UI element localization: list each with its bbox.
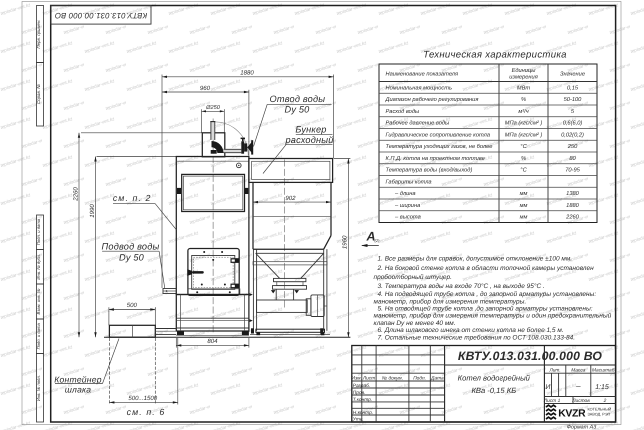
svg-text:Инв. № дубл.: Инв. № дубл. — [36, 254, 41, 280]
svg-text:Техническая характеристика: Техническая характеристика — [423, 50, 567, 61]
svg-text:Пров.: Пров. — [353, 390, 366, 396]
svg-text:Листов: Листов — [571, 398, 590, 404]
svg-text:1880: 1880 — [240, 70, 254, 77]
svg-text:мм: мм — [520, 191, 528, 197]
svg-text:Температура воды (вход/выход): Температура воды (вход/выход) — [386, 167, 473, 174]
svg-text:МПа (кгс/см² ): МПа (кгс/см² ) — [505, 131, 543, 138]
svg-text:960: 960 — [200, 85, 211, 92]
svg-text:расходный: расходный — [284, 135, 333, 145]
svg-text:Диапазон рабочего регулировани: Диапазон рабочего регулирования — [385, 96, 479, 103]
svg-text:манометр, прибор для измерения: манометр, прибор для измерения температу… — [374, 298, 527, 305]
svg-text:клапан Dу не менее 40 мм.: клапан Dу не менее 40 мм. — [374, 320, 456, 327]
svg-text:KVZR: KVZR — [558, 409, 586, 420]
svg-text:Подп. и дата: Подп. и дата — [36, 323, 41, 350]
svg-text:2. На боковой стенке котла в: 2. На боковой стенке котла в области топ… — [377, 265, 595, 272]
svg-text:°С: °С — [520, 144, 527, 150]
svg-text:Подп.: Подп. — [413, 376, 426, 382]
svg-text:Рабочее давление воды: Рабочее давление воды — [386, 120, 451, 127]
svg-text:500: 500 — [127, 302, 138, 309]
svg-text:6. Длина шлакового шнека от с: 6. Длина шлакового шнека от стенки котла… — [378, 327, 564, 334]
svg-text:Dy 50: Dy 50 — [284, 105, 310, 115]
svg-text:№ докум.: № докум. — [382, 376, 403, 382]
svg-text:4. На подводящей трубе котла: 4. На подводящей трубе котла , до запорн… — [378, 291, 597, 298]
svg-text:МПа (кгс/см² ): МПа (кгс/см² ) — [505, 120, 543, 127]
svg-text:80: 80 — [569, 156, 576, 162]
svg-text:Отвод воды: Отвод воды — [270, 94, 326, 104]
svg-text:0,15: 0,15 — [567, 85, 579, 91]
svg-text:Лист: Лист — [543, 398, 556, 404]
svg-text:Dy 50: Dy 50 — [119, 253, 145, 263]
svg-text:Котел водогрейный: Котел водогрейный — [458, 374, 531, 383]
svg-text:Т.контр.: Т.контр. — [353, 397, 372, 403]
svg-text:измерения: измерения — [509, 75, 537, 81]
svg-text:1960: 1960 — [342, 235, 349, 249]
svg-text:Гидравлическое сопротивление к: Гидравлическое сопротивление котла — [386, 131, 491, 138]
svg-text:2260: 2260 — [73, 187, 80, 202]
svg-text:Значение: Значение — [560, 72, 585, 78]
svg-text:пробоотборный штуцер.: пробоотборный штуцер. — [374, 274, 453, 281]
svg-text:мм: мм — [520, 203, 528, 209]
svg-text:Ø250: Ø250 — [205, 105, 221, 111]
svg-text:–: – — [575, 382, 581, 391]
svg-text:0,6(6,0): 0,6(6,0) — [563, 120, 583, 127]
svg-text:Наименование показателя: Наименование показателя — [386, 72, 459, 78]
svg-text:2: 2 — [603, 398, 607, 404]
svg-text:КВа -0,15 КБ: КВа -0,15 КБ — [471, 386, 516, 395]
svg-text:1380: 1380 — [566, 191, 579, 197]
svg-text:Перв. примен.: Перв. примен. — [36, 19, 41, 48]
svg-text:804: 804 — [207, 338, 218, 345]
svg-text:Инв. № подл.: Инв. № подл. — [36, 375, 41, 401]
svg-text:Масса: Масса — [571, 367, 586, 373]
svg-text:Габариты котла: Габариты котла — [386, 178, 432, 185]
svg-text:902: 902 — [285, 195, 296, 202]
svg-text:Контейнер: Контейнер — [54, 374, 101, 384]
svg-text:ЗАВОД. РЭП: ЗАВОД. РЭП — [588, 413, 611, 417]
svg-text:КВТУ.013.031.00.000 ВО: КВТУ.013.031.00.000 ВО — [55, 11, 147, 20]
svg-text:МВт: МВт — [517, 85, 531, 91]
svg-text:70-95: 70-95 — [565, 168, 580, 174]
svg-text:Формат А3: Формат А3 — [567, 424, 597, 430]
svg-text:5. На отводящей трубе котла ,: 5. На отводящей трубе котла ,до запорной… — [378, 306, 593, 313]
svg-text:(2): (2) — [375, 238, 381, 243]
svg-text:Справ. №: Справ. № — [36, 84, 41, 104]
svg-text:250: 250 — [567, 144, 578, 150]
svg-text:7. Остальные технические треб: 7. Остальные технические требования по О… — [378, 334, 576, 341]
svg-text:Номинальная мощность: Номинальная мощность — [386, 85, 452, 91]
svg-text:%: % — [521, 97, 526, 103]
svg-text:К.П.Д. котла на проектном топл: К.П.Д. котла на проектном топливе — [386, 156, 485, 162]
svg-text:1:15: 1:15 — [595, 384, 609, 391]
svg-text:Температура уходящих газов, не: Температура уходящих газов, не более — [386, 143, 493, 150]
svg-text:шлака: шлака — [65, 384, 92, 394]
svg-text:манометр, прибор для измерения: манометр, прибор для измерения температу… — [374, 313, 612, 320]
svg-text:50-100: 50-100 — [564, 97, 583, 103]
svg-text:1. Все размеры для справок, д: 1. Все размеры для справок, допустимое о… — [378, 255, 573, 262]
svg-text:Бункер: Бункер — [295, 124, 326, 134]
svg-text:Единицы: Единицы — [512, 67, 537, 74]
svg-text:Подп. и дата: Подп. и дата — [36, 218, 41, 245]
svg-text:Утв.: Утв. — [353, 417, 364, 423]
svg-text:Расход воды: Расход воды — [386, 108, 420, 115]
svg-text:мм: мм — [520, 215, 528, 221]
svg-text:3. Температура воды на входе: 3. Температура воды на входе 70°С , на в… — [378, 283, 545, 290]
svg-text:500...1500: 500...1500 — [128, 395, 157, 402]
svg-text:– длина: – длина — [394, 190, 416, 197]
svg-text:1880: 1880 — [566, 203, 579, 209]
svg-text:Подвод воды: Подвод воды — [102, 242, 160, 252]
svg-text:Масштаб: Масштаб — [592, 367, 615, 373]
svg-text:– ширина: – ширина — [394, 203, 420, 209]
svg-text:Дата: Дата — [430, 376, 444, 382]
svg-text:КВТУ.013.031.00.000 ВО: КВТУ.013.031.00.000 ВО — [458, 349, 602, 363]
svg-text:м³/ч: м³/ч — [518, 108, 528, 115]
svg-text:Лит.: Лит. — [548, 367, 560, 373]
svg-text:1: 1 — [558, 398, 561, 404]
svg-text:– высота: – высота — [394, 215, 421, 221]
svg-text:0,02(0,2): 0,02(0,2) — [561, 131, 584, 138]
svg-text:см. п. 2: см. п. 2 — [113, 193, 152, 203]
svg-text:°С: °С — [520, 168, 527, 174]
svg-text:Н.контр.: Н.контр. — [353, 410, 373, 416]
svg-text:Разраб.: Разраб. — [353, 383, 370, 389]
svg-text:1990: 1990 — [89, 204, 96, 218]
svg-text:Взам. инв. №: Взам. инв. № — [36, 288, 41, 314]
svg-text:КОТЕЛЬНЫЙ: КОТЕЛЬНЫЙ — [588, 407, 612, 412]
svg-text:Изм.: Изм. — [352, 376, 362, 382]
svg-text:Лист: Лист — [362, 376, 375, 382]
svg-text:см. п. 6: см. п. 6 — [127, 407, 166, 417]
svg-text:2260: 2260 — [565, 215, 579, 221]
svg-text:%: % — [521, 156, 526, 162]
